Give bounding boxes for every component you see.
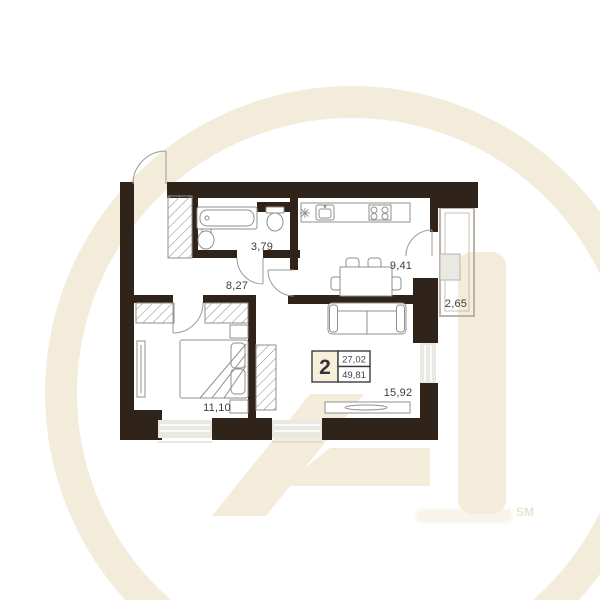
- info-box-area-top: 27,02: [342, 355, 366, 366]
- info-box-rooms-count: 2: [319, 356, 331, 379]
- toilet: [266, 207, 284, 231]
- bedroom-door: [173, 303, 203, 333]
- bedroom-dresser: [137, 341, 145, 397]
- room-area-label-living-room: 15,92: [384, 387, 413, 399]
- nightstand-top: [230, 325, 248, 338]
- watermark-sm-text: SM: [516, 505, 534, 519]
- wall-hall-kitchen: [290, 196, 298, 270]
- bathtub: [197, 207, 257, 229]
- sofa: [328, 303, 406, 334]
- room-area-label-bedroom: 11,10: [203, 402, 231, 414]
- hallway-wardrobe: [168, 196, 192, 258]
- nightstand-bottom: [230, 400, 248, 413]
- room-area-label-balcony: 2,65: [445, 298, 467, 310]
- bedroom-window: [158, 420, 212, 438]
- room-area-label-hallway: 8,27: [226, 280, 248, 292]
- bedroom-wardrobe-right: [205, 303, 248, 323]
- room-area-label-kitchen: 9,41: [390, 260, 412, 272]
- wall-left: [120, 182, 134, 440]
- wall-kitchen-balcony: [430, 196, 438, 232]
- wall-bottom-2: [212, 418, 272, 440]
- tv-console: [325, 402, 410, 413]
- floor-plan: SM: [0, 0, 600, 600]
- wall-right-upper-chunk: [413, 278, 438, 343]
- info-box-area-bottom: 49,81: [342, 370, 366, 381]
- bed: [180, 340, 248, 398]
- wall-right-lower: [420, 383, 438, 440]
- wall-bathroom-bottom-1: [192, 250, 237, 258]
- wall-top: [167, 182, 438, 198]
- vent-symbol: [300, 208, 310, 218]
- bathroom-sink: [198, 229, 214, 249]
- living-side-window: [420, 343, 436, 383]
- bedroom-wardrobe-left: [136, 303, 174, 323]
- balcony-cabinet: [440, 254, 460, 280]
- living-window: [272, 420, 322, 438]
- wall-top-right-corner: [438, 182, 478, 208]
- room-area-label-bathroom: 3,79: [251, 241, 273, 253]
- wall-bottom-1: [120, 418, 158, 440]
- balcony-door: [406, 230, 432, 256]
- living-wardrobe: [256, 345, 276, 410]
- wall-bedroom-right: [248, 295, 256, 440]
- wall-bedroom-top-1: [133, 295, 173, 303]
- watermark-word-blur: [416, 509, 512, 523]
- info-box: 2 27,02 49,81: [312, 351, 370, 382]
- kitchen-counter: [301, 203, 410, 222]
- watermark-vertical-band: [458, 252, 506, 514]
- living-door: [268, 270, 294, 296]
